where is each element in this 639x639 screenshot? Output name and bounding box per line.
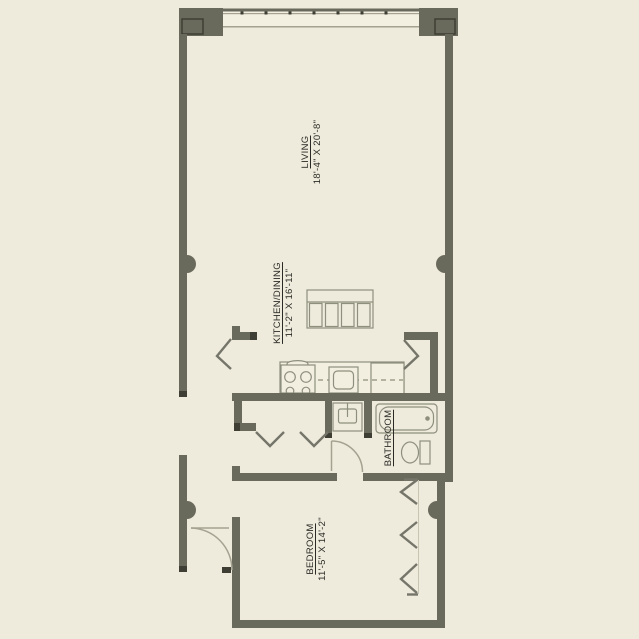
vanity-nook-east-wall xyxy=(364,401,372,438)
toilet-bowl xyxy=(402,442,419,463)
kitchen-nook-east-wall xyxy=(430,332,438,393)
bathroom-fixtures xyxy=(333,403,437,464)
column-bump-right-upper xyxy=(436,255,445,273)
kitchen-sink xyxy=(329,367,358,393)
hall-closet-bifold-doors xyxy=(256,432,328,446)
bedroom-right-wall2 xyxy=(437,474,445,628)
top-left-column xyxy=(179,8,223,36)
bathroom-vanity-sink xyxy=(333,403,362,431)
top-right-column xyxy=(419,8,458,36)
kitchen-stub-right xyxy=(404,332,430,340)
entry-door-arc xyxy=(191,528,232,570)
entry-door xyxy=(191,528,232,570)
column-bump-right-lower xyxy=(428,501,437,519)
kitchen-door-left xyxy=(217,339,231,369)
right-wall xyxy=(445,34,453,474)
kitchen-door-right xyxy=(404,340,418,369)
bathroom-door xyxy=(332,441,363,472)
bathroom-door-arc xyxy=(332,441,363,472)
dining-table xyxy=(307,290,373,328)
walls xyxy=(179,8,458,628)
kitchen-stub-left-up xyxy=(232,326,240,333)
bedroom-bottom-wall xyxy=(232,620,445,628)
hall-north-wall-left xyxy=(232,473,337,481)
hall-wall-up-stub xyxy=(232,466,240,473)
toilet-tank xyxy=(420,441,430,464)
kitchen-south-wall xyxy=(232,393,445,401)
left-wall-upper xyxy=(179,34,187,397)
tub-drain xyxy=(426,417,429,420)
bedroom-closet-doors xyxy=(401,480,419,595)
bathtub xyxy=(376,404,437,433)
floor-plan-drawing xyxy=(0,0,639,639)
toilet xyxy=(402,441,431,464)
floor-plan-page: { "theme": { "bg": "#eeebdc", "band": "#… xyxy=(0,0,639,639)
kitchen-counter xyxy=(280,361,404,395)
stove xyxy=(281,361,315,395)
left-wall-lower xyxy=(179,455,187,572)
refrigerator xyxy=(371,363,404,394)
window-band xyxy=(222,9,420,28)
column-bump-left-upper xyxy=(187,255,196,273)
bedroom-west-wall xyxy=(232,517,240,620)
column-bump-left-lower xyxy=(187,501,196,519)
